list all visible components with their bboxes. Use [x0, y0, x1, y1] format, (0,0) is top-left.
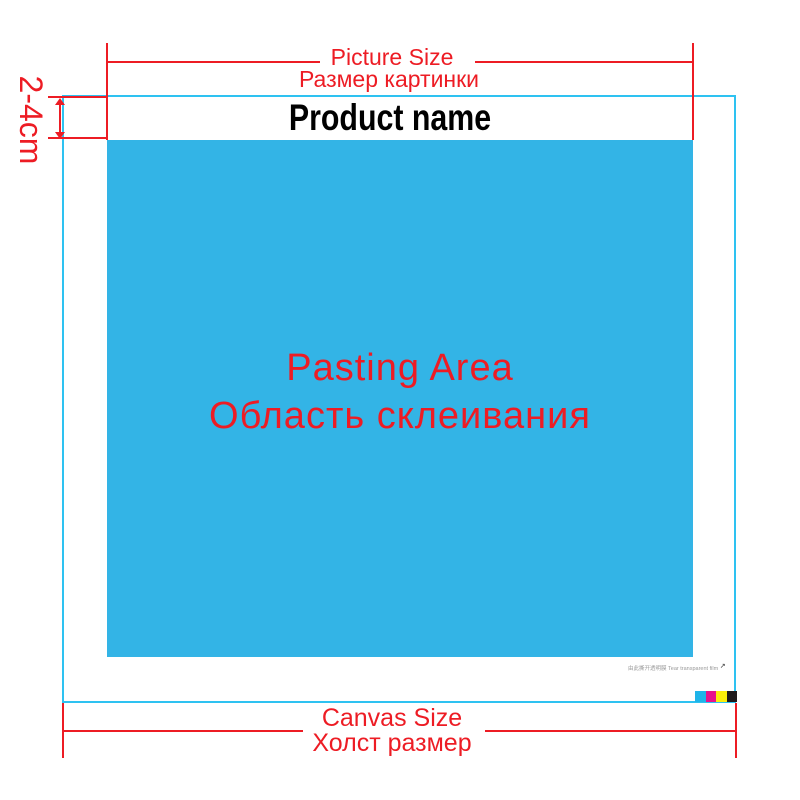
cyan-bar	[695, 691, 706, 702]
pasting-area-label-ru: Область склеивания	[100, 392, 700, 440]
margin-arrow-line	[59, 104, 61, 133]
size-diagram: Product name Pasting Area Область склеив…	[0, 0, 800, 800]
yellow-bar	[716, 691, 727, 702]
tear-film-arrow-icon: ↗	[720, 663, 726, 670]
margin-arrowhead-up-icon	[55, 98, 65, 105]
pasting-area-label-en: Pasting Area	[100, 344, 700, 392]
magenta-bar	[706, 691, 717, 702]
margin-arrowhead-down-icon	[55, 132, 65, 139]
margin-label: 2-4cm	[13, 50, 49, 190]
pasting-area-labels: Pasting Area Область склеивания	[100, 344, 700, 440]
tear-film-footnote: 由此撕开透明膜 Tear transparent film ↗	[628, 663, 708, 673]
product-name-label: Product name	[136, 97, 644, 139]
picture-size-label-ru: Размер картинки	[0, 68, 778, 91]
black-bar	[727, 691, 738, 702]
cmyk-registration-bars	[695, 691, 737, 702]
canvas-size-label-ru: Холст размер	[0, 731, 784, 756]
canvas-size-label-en: Canvas Size	[0, 706, 784, 731]
tear-film-text: 由此撕开透明膜 Tear transparent film	[628, 666, 718, 672]
